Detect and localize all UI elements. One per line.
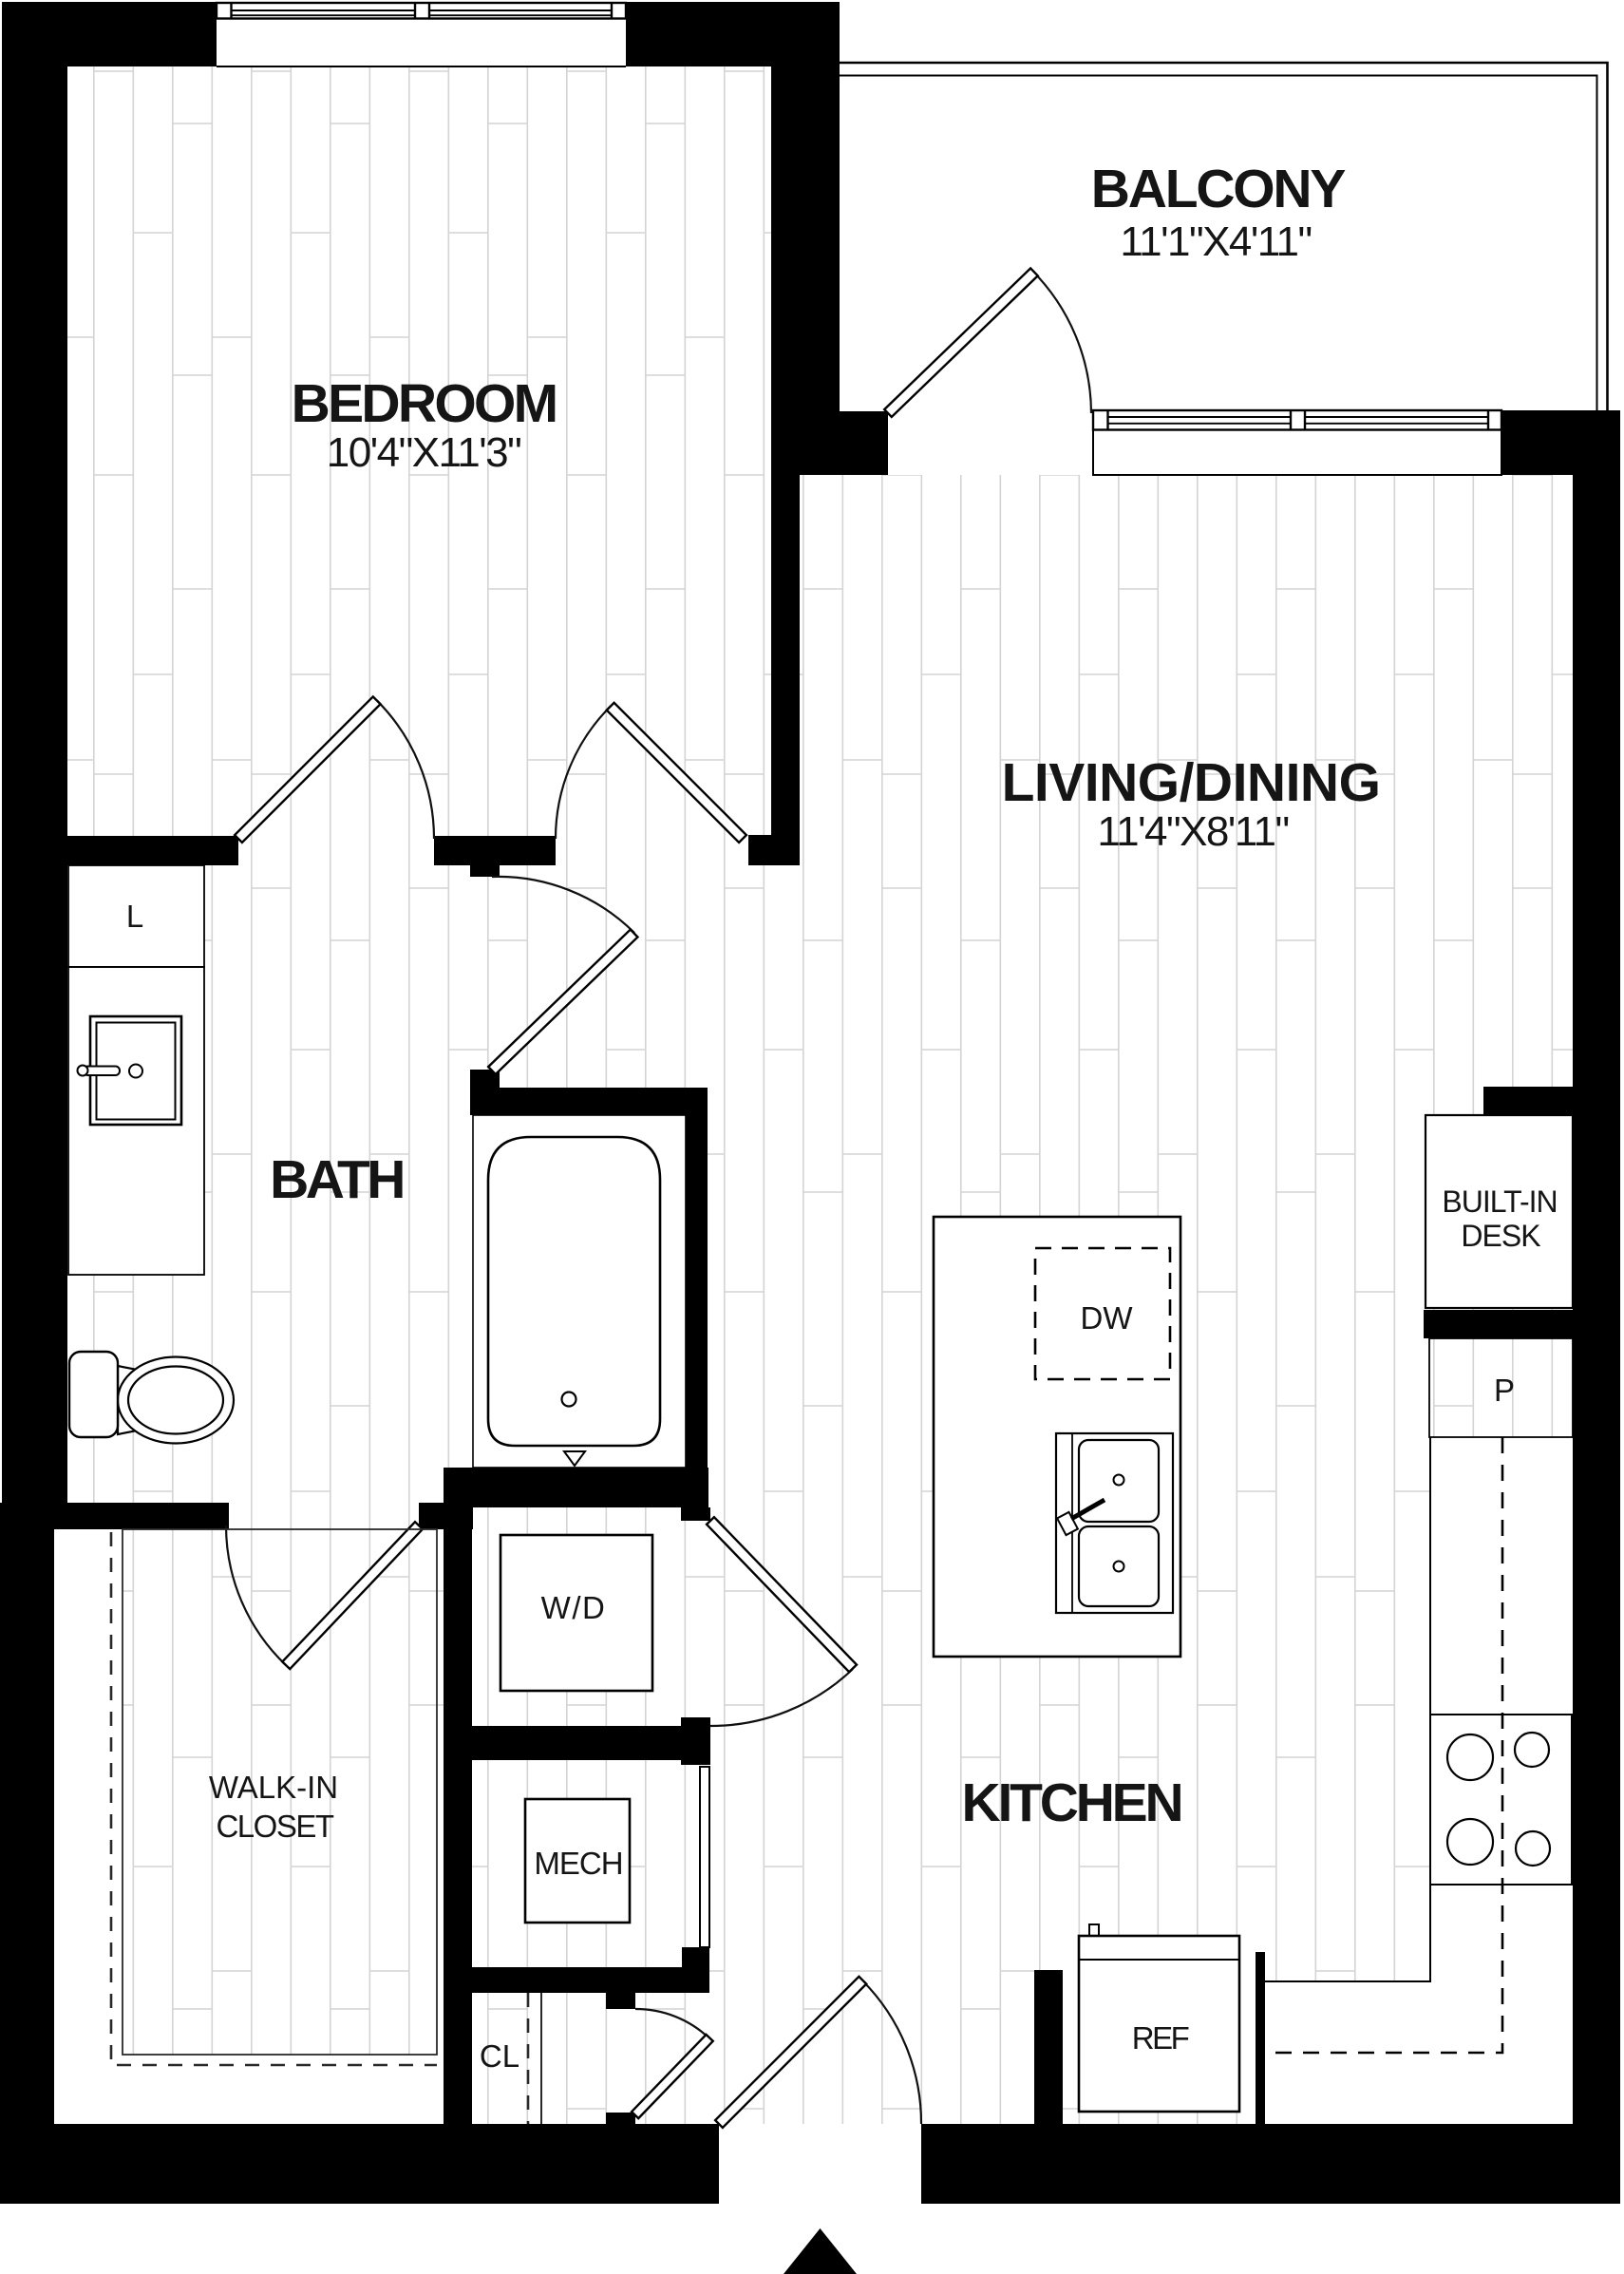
svg-text:BATH: BATH — [270, 1149, 403, 1210]
svg-text:11'1"X4'11": 11'1"X4'11" — [1120, 218, 1311, 265]
svg-text:L: L — [126, 899, 143, 934]
svg-text:BEDROOM: BEDROOM — [292, 373, 557, 434]
svg-text:P: P — [1494, 1373, 1515, 1408]
svg-text:W/D: W/D — [541, 1590, 607, 1625]
svg-text:BUILT-IN: BUILT-IN — [1442, 1184, 1557, 1219]
svg-text:CLOSET: CLOSET — [216, 1809, 333, 1844]
svg-text:MECH: MECH — [534, 1846, 622, 1881]
svg-text:DW: DW — [1081, 1300, 1134, 1336]
svg-text:KITCHEN: KITCHEN — [962, 1772, 1181, 1833]
svg-text:DESK: DESK — [1461, 1219, 1540, 1253]
svg-text:10'4"X11'3": 10'4"X11'3" — [327, 429, 520, 476]
svg-text:11'4"X8'11": 11'4"X8'11" — [1097, 808, 1288, 855]
svg-text:REF: REF — [1132, 2020, 1189, 2056]
svg-text:BALCONY: BALCONY — [1091, 159, 1347, 219]
svg-text:WALK-IN: WALK-IN — [209, 1770, 338, 1805]
svg-text:LIVING/DINING: LIVING/DINING — [1002, 752, 1381, 813]
svg-text:CL: CL — [480, 2038, 519, 2074]
